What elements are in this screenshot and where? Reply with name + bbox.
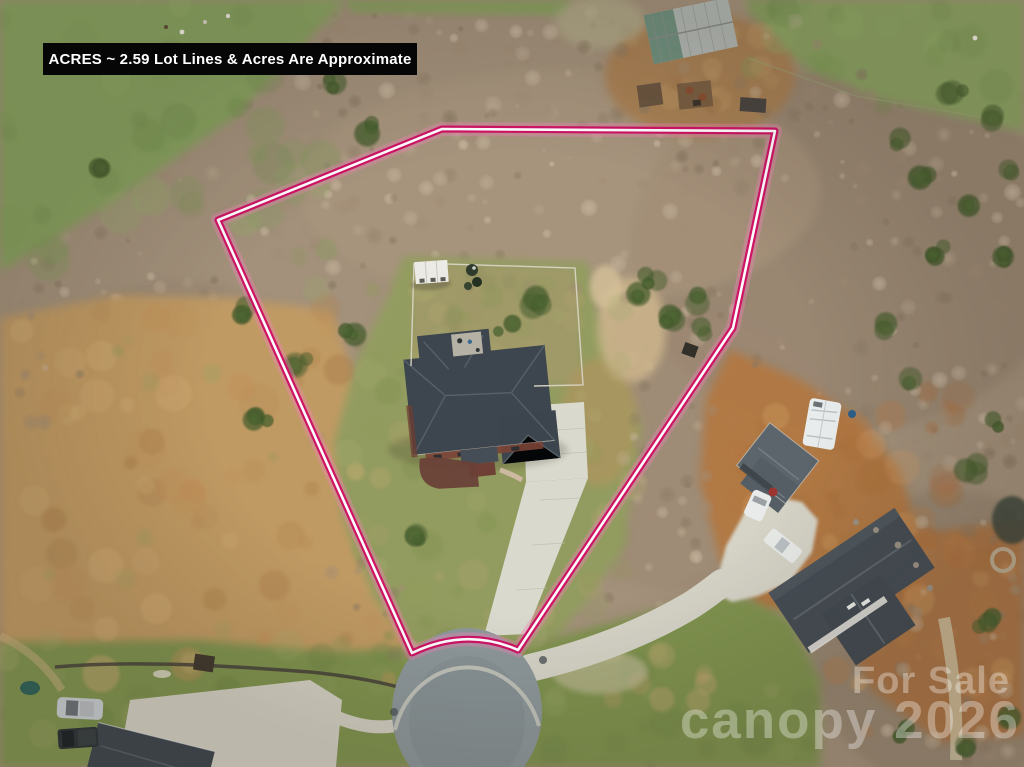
- vignette: [0, 0, 1024, 767]
- acreage-label: ACRES ~ 2.59 Lot Lines & Acres Are Appro…: [43, 43, 417, 75]
- watermark-canopy: canopy 2026: [680, 690, 1020, 751]
- aerial-photo: ACRES ~ 2.59 Lot Lines & Acres Are Appro…: [0, 0, 1024, 767]
- acreage-label-text: ACRES ~ 2.59 Lot Lines & Acres Are Appro…: [48, 51, 411, 68]
- scene-svg: [0, 0, 1024, 767]
